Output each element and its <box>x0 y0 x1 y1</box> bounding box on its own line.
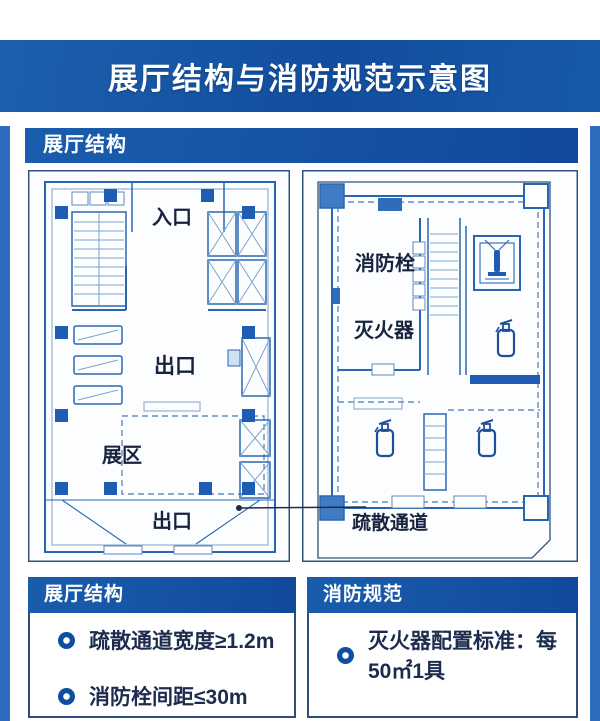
exhibition-hall-floor-plan-card: 入口 出口 展区 出口 <box>28 170 290 562</box>
fire-safety-floor-plan: 消防栓 灭火器 疏散通道 <box>302 170 578 562</box>
infographic-page: { "page": { "title": "展厅结构与消防规范示意图" }, "… <box>0 0 600 721</box>
section-header: 展厅结构 <box>25 128 578 163</box>
list-item: 疏散通道宽度≥1.2m <box>58 625 294 655</box>
extinguisher-standard-rule: 灭火器配置标准：每50㎡1具 <box>368 625 576 685</box>
bullet-dot-icon <box>58 632 75 649</box>
fire-code-info-body: 灭火器配置标准：每50㎡1具 <box>307 613 578 718</box>
structure-info-header-label: 展厅结构 <box>44 584 124 605</box>
evacuation-corridor-label: 疏散通道 <box>352 511 428 534</box>
title-band: 展厅结构与消防规范示意图 <box>0 40 600 112</box>
fire-code-info-header-label: 消防规范 <box>323 584 403 605</box>
fire-code-info-panel: 消防规范 灭火器配置标准：每50㎡1具 <box>307 577 578 718</box>
structure-info-body: 疏散通道宽度≥1.2m 消防栓间距≤30m <box>28 613 296 718</box>
entrance-label: 入口 <box>152 206 192 229</box>
corridor-width-rule: 疏散通道宽度≥1.2m <box>89 625 274 655</box>
center-exit-label: 出口 <box>154 355 196 378</box>
zone-label: 展区 <box>102 445 142 467</box>
bullet-dot-icon <box>337 647 354 664</box>
page-title: 展厅结构与消防规范示意图 <box>108 54 492 98</box>
left-edge-strip <box>0 126 10 721</box>
bottom-exit-label: 出口 <box>152 510 192 533</box>
structure-info-panel: 展厅结构 疏散通道宽度≥1.2m 消防栓间距≤30m <box>28 577 296 718</box>
exhibition-hall-floor-plan: 入口 出口 展区 出口 <box>28 170 290 562</box>
section-header-label: 展厅结构 <box>43 134 127 156</box>
bullet-dot-icon <box>58 688 75 705</box>
fire-code-info-header: 消防规范 <box>307 577 578 613</box>
right-edge-strip <box>590 126 600 721</box>
list-item: 灭火器配置标准：每50㎡1具 <box>337 625 576 685</box>
extinguisher-label: 灭火器 <box>354 319 415 342</box>
hydrant-label: 消防栓 <box>355 251 415 275</box>
fire-safety-floor-plan-card: 消防栓 灭火器 疏散通道 <box>302 170 578 562</box>
structure-info-header: 展厅结构 <box>28 577 296 613</box>
list-item: 消防栓间距≤30m <box>58 681 294 711</box>
hydrant-spacing-rule: 消防栓间距≤30m <box>89 681 248 711</box>
